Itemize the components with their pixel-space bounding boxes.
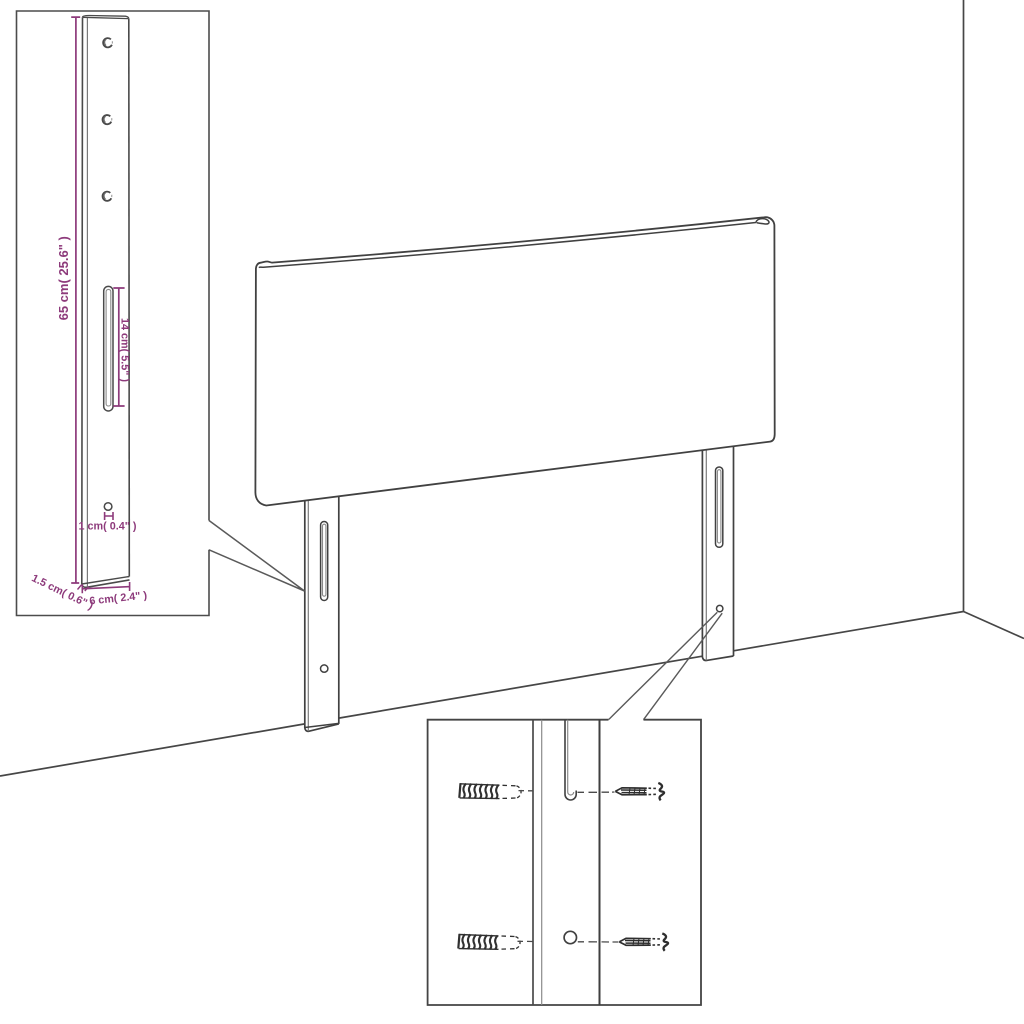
svg-text:14 cm( 5.5" ): 14 cm( 5.5" ): [119, 318, 131, 382]
svg-text:65 cm( 25.6" ): 65 cm( 25.6" ): [56, 236, 71, 320]
svg-text:1 cm( 0.4" ): 1 cm( 0.4" ): [79, 521, 137, 533]
